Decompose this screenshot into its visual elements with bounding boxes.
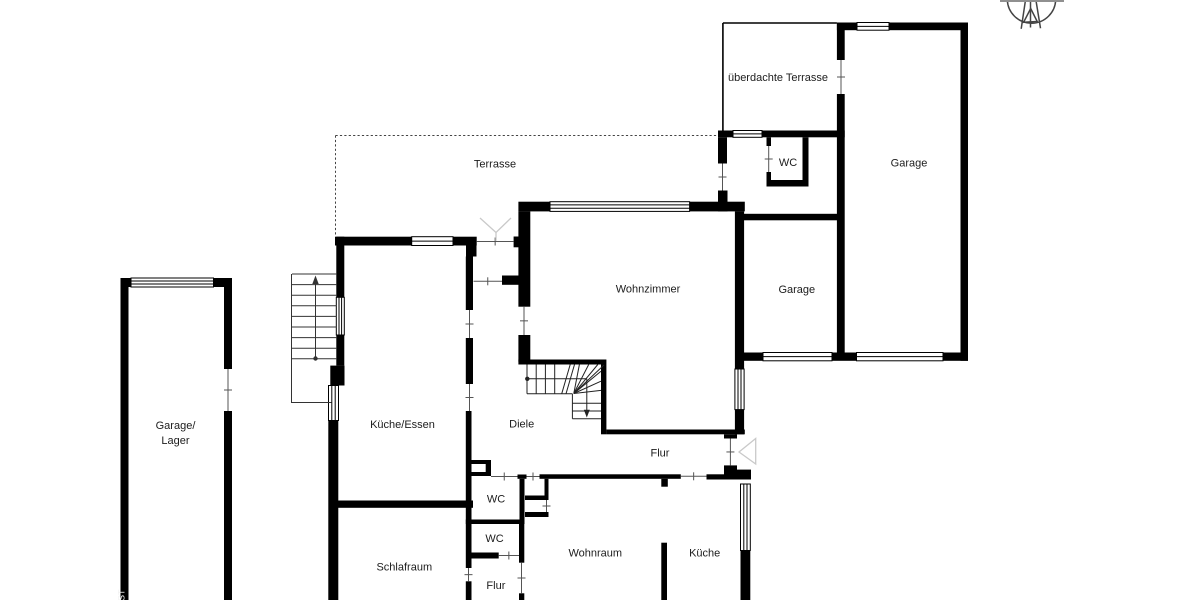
svg-text:Schlafraum: Schlafraum xyxy=(376,562,432,574)
svg-text:Lager: Lager xyxy=(161,435,189,447)
svg-text:Garage/: Garage/ xyxy=(156,420,197,432)
svg-text:WC: WC xyxy=(779,157,797,169)
svg-text:überdachte Terrasse: überdachte Terrasse xyxy=(728,72,828,84)
svg-text:WC: WC xyxy=(485,533,503,545)
svg-text:Wohnzimmer: Wohnzimmer xyxy=(616,283,681,295)
svg-text:Küche: Küche xyxy=(689,548,720,560)
svg-text:Garage: Garage xyxy=(778,284,815,296)
svg-text:Küche/Essen: Küche/Essen xyxy=(370,419,435,431)
svg-text:Terrasse: Terrasse xyxy=(474,158,516,170)
svg-text:ST: ST xyxy=(117,589,127,600)
svg-text:Garage: Garage xyxy=(891,158,928,170)
svg-text:Diele: Diele xyxy=(509,418,534,430)
svg-text:WC: WC xyxy=(487,494,505,506)
svg-text:Wohnraum: Wohnraum xyxy=(568,548,622,560)
svg-text:Flur: Flur xyxy=(651,448,670,460)
svg-text:Flur: Flur xyxy=(486,580,505,592)
